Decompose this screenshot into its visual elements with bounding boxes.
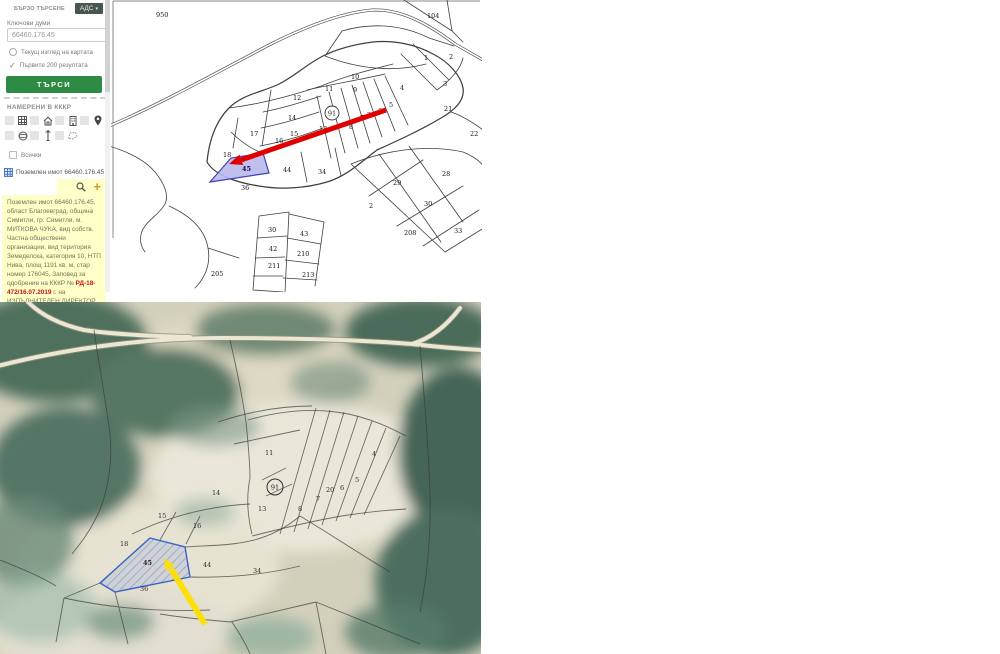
parcel-label-20: 20 (326, 486, 334, 494)
parcel-label-15: 15 (290, 130, 298, 138)
parcel-label-36: 36 (140, 585, 148, 593)
results-header: НАМЕРЕНИ В КККР (7, 104, 103, 111)
parcel-label-44: 44 (283, 166, 291, 174)
parcel-label-5: 5 (355, 476, 359, 484)
parcel-label-950: 950 (156, 11, 168, 19)
radio-current-view[interactable] (9, 48, 17, 56)
parcel-label-16: 16 (193, 522, 201, 530)
option-current-view-label: Текущ изглед на картата (21, 49, 93, 56)
parcel-label-29: 29 (393, 179, 401, 187)
result-item-label: Поземлен имот 66460.176.45 (16, 169, 104, 176)
parcel-label-213: 213 (302, 271, 314, 279)
parcel-label-30: 30 (268, 226, 276, 234)
parcel-label-1: 1 (424, 54, 428, 62)
parcel-label-2: 2 (369, 202, 373, 210)
placeholder-icon (80, 116, 89, 125)
result-item[interactable]: Поземлен имот 66460.176.45 (4, 168, 108, 177)
parcel-label-9: 9 (353, 86, 357, 94)
parcel-label-104: 104 (427, 12, 439, 20)
parcel-label-14: 14 (212, 489, 220, 497)
parcel-label-11: 11 (265, 449, 273, 457)
parcel-label-211: 211 (268, 262, 280, 270)
option-all: Всички (9, 151, 101, 159)
aerial-map-svg: 91 111387206541415161845443436 (0, 302, 481, 654)
parcel-label-13: 13 (258, 505, 266, 513)
placeholder-icon (5, 116, 14, 125)
parcel-label-3: 3 (443, 80, 447, 88)
chevron-down-icon: ▾ (95, 6, 98, 12)
sidebar-topbar: БЪРЗО ТЪРСЕНЕ АДС ▾ (0, 0, 110, 15)
ads-button[interactable]: АДС ▾ (75, 3, 103, 14)
app-canvas: БЪРЗО ТЪРСЕНЕ АДС ▾ Ключови думи Текущ и… (0, 0, 1000, 654)
parcel-label-4: 4 (372, 450, 376, 458)
parcel-label-18: 18 (223, 151, 231, 159)
landmark-91: 91 (325, 106, 339, 120)
scrollbar-thumb[interactable] (105, 0, 110, 92)
checkbox-all[interactable] (9, 151, 17, 159)
keywords-input[interactable] (7, 28, 107, 42)
parcel-label-17: 17 (250, 130, 258, 138)
search-sidebar: БЪРЗО ТЪРСЕНЕ АДС ▾ Ключови думи Текущ и… (0, 0, 110, 292)
parcel-label-8: 8 (298, 505, 302, 513)
option-all-label: Всички (21, 152, 41, 159)
street-lamp-icon[interactable] (42, 130, 53, 141)
landmark-91-label: 91 (328, 110, 336, 118)
parcel-label-2: 2 (449, 53, 453, 61)
placeholder-icon (55, 131, 64, 140)
sidebar-scrollbar[interactable] (105, 0, 110, 292)
cadastral-map-svg: 91 9501041231011945620781312141517161845… (111, 0, 482, 292)
ads-button-label: АДС (80, 5, 94, 12)
location-pin-icon[interactable] (92, 115, 103, 126)
house-icon[interactable] (42, 115, 53, 126)
placeholder-icon (30, 116, 39, 125)
option-current-view: Текущ изглед на картата (9, 48, 101, 56)
parcel-label-7: 7 (316, 495, 320, 503)
parcel-label-30: 30 (424, 200, 432, 208)
keywords-label: Ключови думи (7, 20, 103, 27)
parcel-label-45: 45 (143, 559, 153, 567)
parcel-label-12: 12 (293, 94, 301, 102)
building-icon[interactable] (67, 115, 78, 126)
parcel-label-33: 33 (454, 227, 462, 235)
parcel-grid-icon (4, 168, 13, 177)
parcel-info-text: Поземлен имот 66460.176.45, област Благо… (7, 199, 101, 287)
parcel-label-14: 14 (288, 114, 296, 122)
terrain-and-vegetation (0, 302, 481, 654)
option-first-200: ✓ Първите 200 резултата (9, 62, 101, 69)
tab-quick-search[interactable]: БЪРЗО ТЪРСЕНЕ (14, 6, 65, 12)
parcel-label-21: 21 (444, 105, 452, 113)
parcel-label-34: 34 (318, 168, 326, 176)
map-background (111, 0, 482, 292)
parcel-label-10: 10 (351, 73, 359, 81)
parcel-label-4: 4 (400, 84, 404, 92)
parcel-label-210: 210 (297, 250, 309, 258)
placeholder-icon (5, 131, 14, 140)
parcel-label-205: 205 (211, 270, 223, 278)
aerial-map[interactable]: 91 111387206541415161845443436 (0, 302, 481, 654)
parcel-label-28: 28 (442, 170, 450, 178)
result-actions: + (2, 179, 108, 195)
globe-icon[interactable] (17, 130, 28, 141)
parcel-label-45: 45 (242, 165, 252, 173)
cadastral-map[interactable]: 91 9501041231011945620781312141517161845… (111, 0, 482, 292)
result-type-icons-row2 (5, 130, 105, 141)
polygon-outline-icon[interactable] (67, 130, 78, 141)
parcel-label-22: 22 (470, 130, 478, 138)
result-type-icons-row1 (5, 115, 105, 126)
parcel-label-208: 208 (404, 229, 416, 237)
parcel-label-43: 43 (300, 230, 308, 238)
parcel-label-18: 18 (120, 540, 128, 548)
placeholder-icon (30, 131, 39, 140)
divider (4, 97, 106, 99)
parcel-label-36: 36 (241, 184, 249, 192)
parcel-label-42: 42 (269, 245, 277, 253)
option-first-200-label: Първите 200 резултата (20, 62, 88, 69)
grid-icon[interactable] (17, 115, 28, 126)
parcel-label-15: 15 (158, 512, 166, 520)
magnifier-icon[interactable] (76, 182, 86, 192)
placeholder-icon (55, 116, 64, 125)
parcel-label-34: 34 (253, 567, 261, 575)
plus-icon[interactable]: + (93, 182, 101, 192)
parcel-label-44: 44 (203, 561, 211, 569)
search-button[interactable]: ТЪРСИ (6, 76, 102, 93)
aerial-landmark-91-label: 91 (271, 484, 279, 492)
checkbox-first-200[interactable]: ✓ (9, 63, 16, 69)
parcel-label-5: 5 (389, 101, 393, 109)
parcel-label-11: 11 (325, 85, 333, 93)
parcel-label-6: 6 (340, 484, 344, 492)
